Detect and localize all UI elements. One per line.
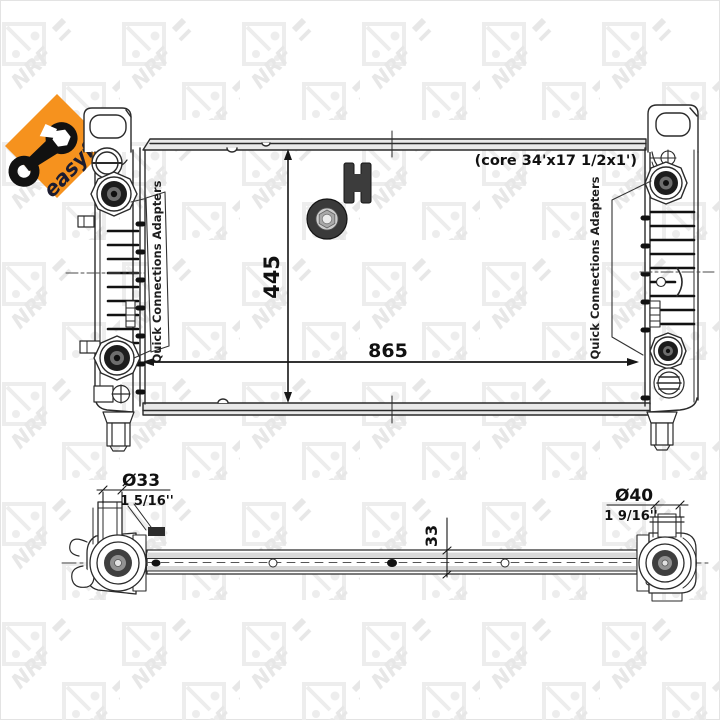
- right-adapters-label: Quick Connections Adapters: [588, 176, 602, 359]
- left-side-stub-upper: [78, 216, 94, 227]
- core-bottom-bar: [143, 396, 650, 423]
- core-left-edge: [138, 148, 145, 406]
- right-tank: [640, 105, 714, 450]
- outlet-diameter-label: Ø40: [615, 486, 653, 506]
- right-tank-clip: [650, 301, 660, 327]
- left-tank-clip: [126, 301, 135, 327]
- bottom-left-tank: [70, 502, 165, 594]
- height-dimension-445: [284, 149, 292, 403]
- drain-elbow: [94, 385, 130, 403]
- bottom-right-tank: [637, 514, 696, 601]
- inlet-diameter-label: Ø33: [122, 471, 160, 491]
- height-dim-label: 445: [260, 255, 284, 299]
- left-lower-port: [94, 336, 140, 380]
- left-adapters-label: Quick Connections Adapters: [150, 180, 164, 363]
- grommet-front-view: [307, 199, 347, 239]
- strip-mount-dot-left: [152, 560, 161, 567]
- strip-hole-2: [501, 559, 509, 567]
- radiator-bottom-view: Ø33 1 5/16'' Ø40 1 9/16'' 33: [62, 471, 708, 601]
- left-bottom-pin: [103, 412, 134, 451]
- radiator-technical-drawing: NRF easyfit: [0, 0, 720, 720]
- outlet-inches-label: 1 9/16'': [604, 509, 657, 524]
- right-bottom-pin: [647, 412, 677, 450]
- drawing-layer: easyfit: [0, 0, 720, 720]
- left-upper-port: [91, 172, 137, 216]
- inlet-inches-label: 1 5/16'': [120, 494, 173, 509]
- right-tank-hole: [657, 278, 666, 287]
- radiator-front-view: Quick Connections Adapters Quick Connect…: [66, 105, 714, 451]
- right-boss-circles: [639, 537, 691, 589]
- right-lower-port: [650, 333, 686, 369]
- core-size-note: (core 34'x17 1/2x1'): [475, 153, 637, 169]
- grommet-side-view: [344, 163, 371, 203]
- thickness-dim-label: 33: [422, 525, 441, 547]
- strip-mount-dot-center: [387, 559, 397, 567]
- left-mount-hole: [90, 115, 126, 138]
- right-mount-hole: [656, 113, 690, 136]
- right-threaded-cap: [654, 368, 684, 398]
- right-upper-port: [645, 162, 687, 204]
- core-strip-top-view: [147, 550, 637, 574]
- left-boss-circles: [90, 535, 146, 591]
- width-dim-label: 865: [368, 340, 408, 362]
- strip-hole-1: [269, 559, 277, 567]
